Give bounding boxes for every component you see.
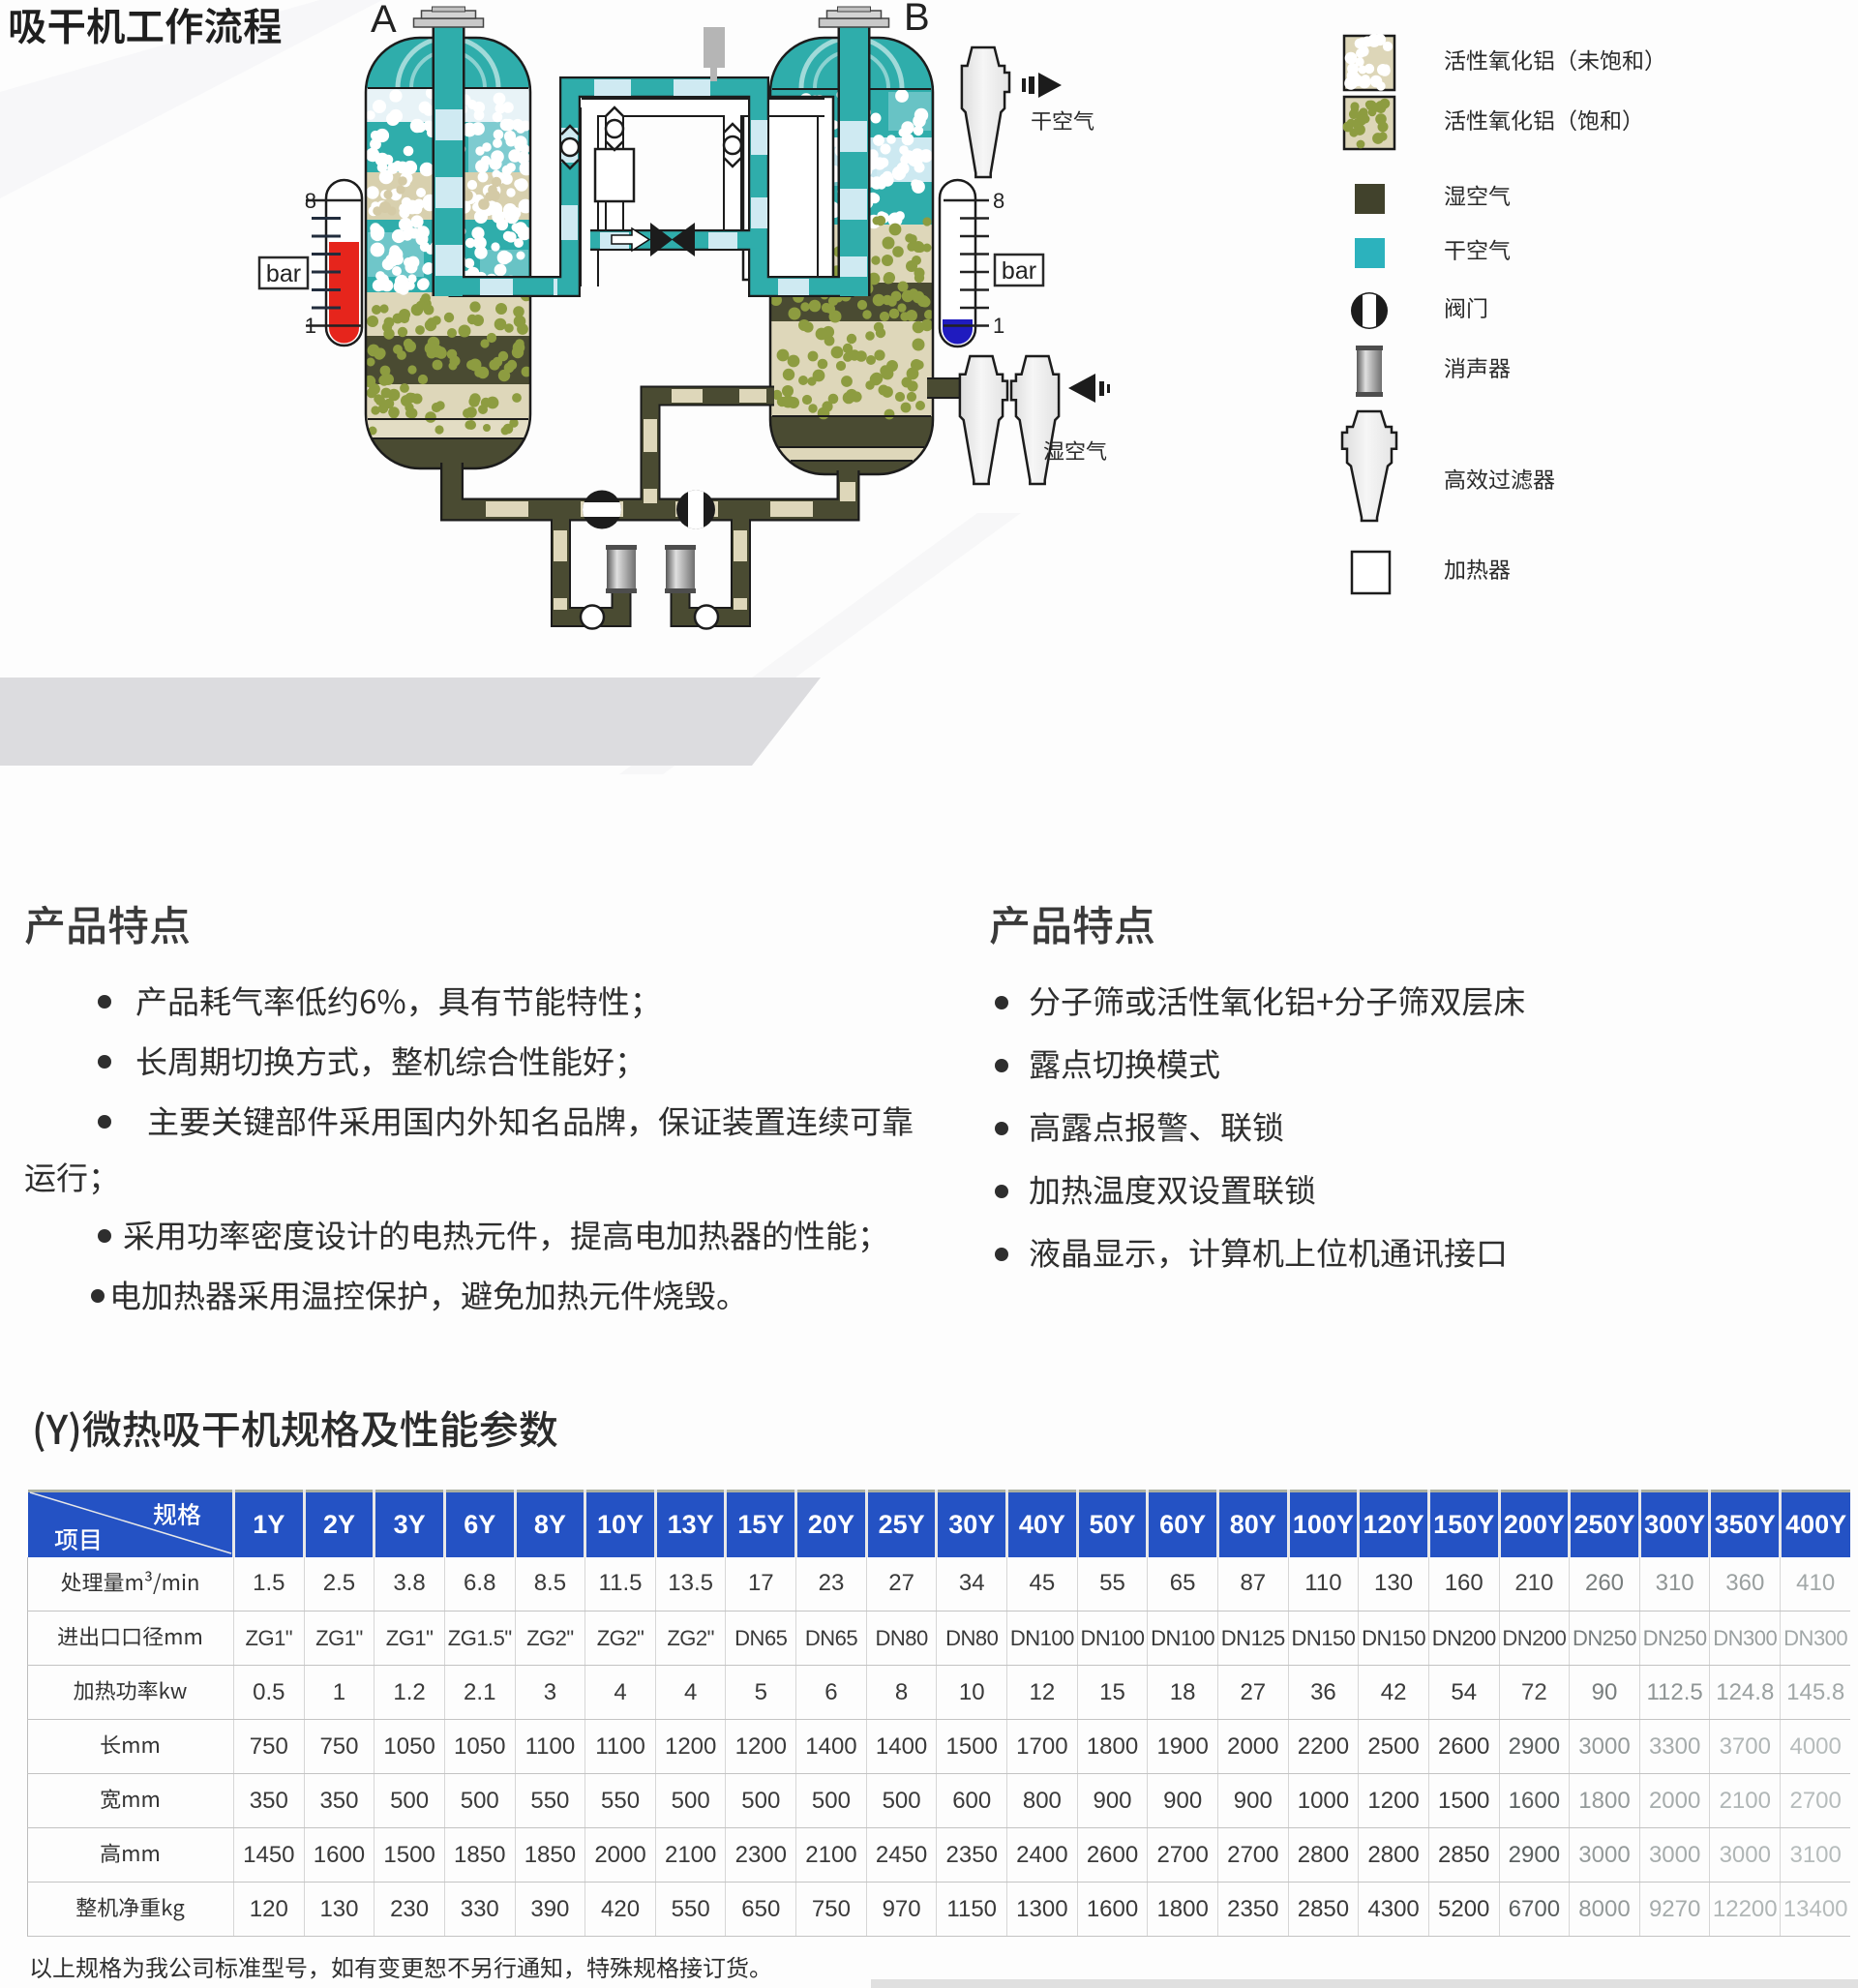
svg-text:8: 8 [993, 189, 1004, 213]
svg-text:8: 8 [305, 189, 316, 213]
svg-text:1: 1 [305, 314, 316, 338]
svg-text:1: 1 [993, 314, 1004, 338]
svg-text:B: B [904, 0, 930, 39]
svg-text:bar: bar [266, 260, 301, 287]
svg-text:bar: bar [1002, 257, 1036, 285]
svg-text:A: A [371, 0, 397, 41]
